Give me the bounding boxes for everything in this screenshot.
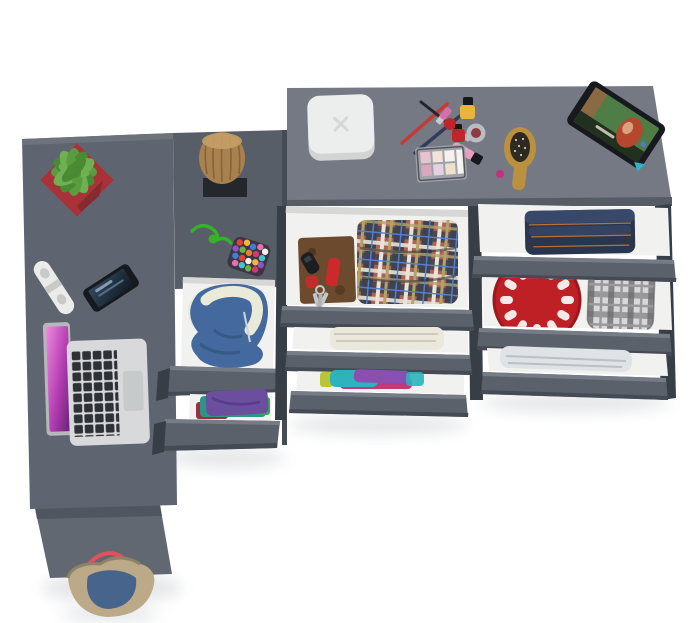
- tartan-shirt: [357, 220, 458, 304]
- render-canvas: [0, 0, 700, 623]
- drawer-side-rail: [156, 368, 170, 401]
- bristle-pad: [510, 132, 530, 162]
- blue-hoodie: [188, 283, 268, 368]
- drawer-side-rail: [152, 421, 166, 455]
- dresser: [275, 79, 676, 420]
- cream-towel: [330, 327, 444, 350]
- white-box: [307, 94, 375, 161]
- leather-folio: [298, 236, 356, 309]
- nail-polish-red: [444, 118, 456, 130]
- wooden-stump: [199, 132, 245, 184]
- furniture-render: [0, 0, 700, 623]
- light-towel: [500, 346, 633, 373]
- cosmetic-jar: [467, 124, 486, 143]
- laptop-keyboard: [71, 349, 120, 437]
- folded-jeans: [525, 209, 636, 255]
- mini-lipstick: [496, 170, 504, 178]
- eyeshadow-palette: [415, 144, 467, 182]
- cord-knot: [209, 235, 218, 244]
- laptop-screen: [46, 326, 72, 432]
- laptop-trackpad: [123, 371, 144, 412]
